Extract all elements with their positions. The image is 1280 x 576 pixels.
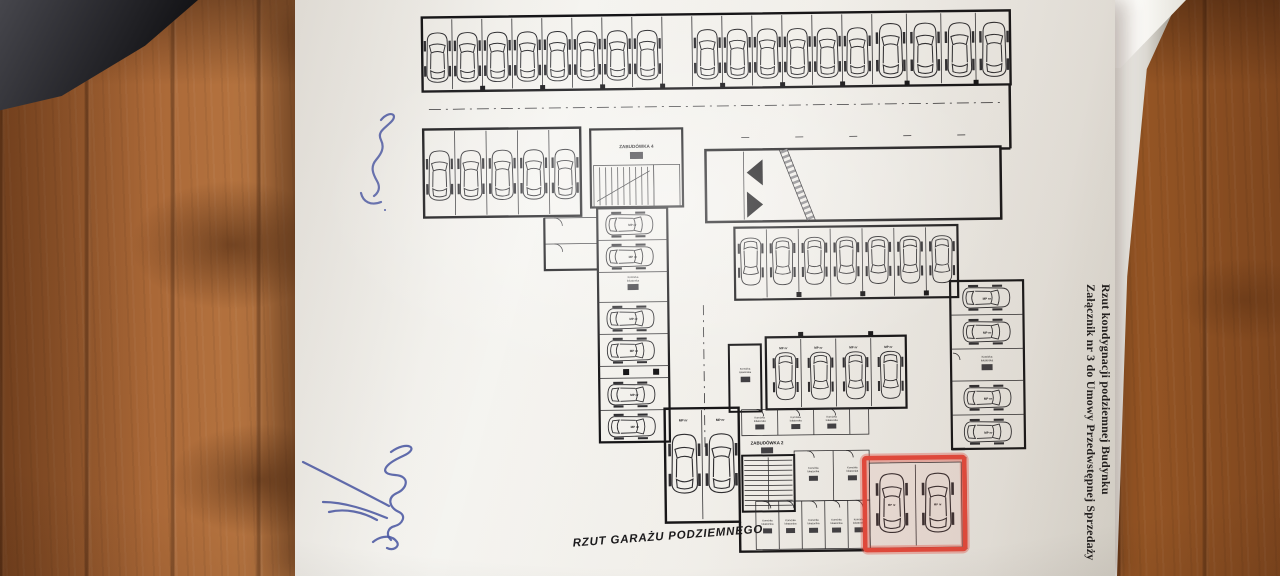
ramp xyxy=(705,147,1001,223)
parking-space-label: MP nr xyxy=(984,397,993,401)
ramp-arrow-up-icon xyxy=(747,159,763,185)
svg-text:lokatorska: lokatorska xyxy=(627,279,640,283)
side-caption-line2: Załącznik nr 3 do Umowy Przedwstępnej Sp… xyxy=(1083,284,1098,576)
svg-text:lokatorska: lokatorska xyxy=(739,370,751,374)
ramp-hatching xyxy=(783,150,811,220)
svg-text:lokatorska: lokatorska xyxy=(981,358,994,362)
parking-space-label: MP nr xyxy=(629,255,638,259)
handwriting-top xyxy=(361,114,394,211)
handwriting-bottom xyxy=(303,446,411,549)
svg-text:lokatorska: lokatorska xyxy=(826,418,838,422)
svg-text:lokatorska: lokatorska xyxy=(808,521,820,525)
parking-center-cluster: Komórka lokatorska MP nr MP nr MP nr MP … xyxy=(729,331,907,412)
corridor-rooms xyxy=(544,217,598,270)
storage-room: Komórka lokatorska xyxy=(739,367,752,383)
storage-rooms-mid: Komórka lokatorska Komórka lokatorska xyxy=(794,450,870,501)
parking-left-cluster xyxy=(423,128,581,218)
svg-text:Komórka: Komórka xyxy=(628,275,639,279)
storage-room-row-bottom: Komórka lokatorska Komórka lokatorska Ko… xyxy=(756,500,871,549)
parking-right-column: MP nr MP nr MP nr MP nr Komórka lokators… xyxy=(950,280,1025,449)
area-number-box xyxy=(761,447,773,453)
parking-row-top xyxy=(422,10,1011,91)
parking-bottom-left-pair: MP nr MP nr xyxy=(665,408,740,523)
svg-text:lokatorska: lokatorska xyxy=(846,469,858,473)
plan-title: RZUT GARAŻU PODZIEMNEGO xyxy=(572,523,763,550)
parking-space-label: MP nr xyxy=(629,317,638,321)
side-caption: Rzut kondygnacji podziemnej Budynku Załą… xyxy=(1083,284,1113,576)
parking-space-label: MP nr xyxy=(849,345,858,349)
parking-space-label: MP nr xyxy=(631,425,640,429)
ramp-arrow-down-icon xyxy=(747,191,763,217)
aisle-center-line xyxy=(429,102,1005,109)
svg-text:lokatorska: lokatorska xyxy=(762,522,774,526)
svg-text:lokatorska: lokatorska xyxy=(807,469,819,473)
parking-mid-left-column: MP nr MP nr MP nr MP nr MP nr MP nr Komó… xyxy=(597,208,670,443)
svg-text:lokatorska: lokatorska xyxy=(790,418,802,422)
parking-space-label: MP nr xyxy=(884,345,893,349)
parking-space-label: MP nr xyxy=(983,331,992,335)
parking-space-label: MP nr xyxy=(814,346,823,350)
area-number-box xyxy=(630,152,643,159)
floor-plan-sheet: ZABUDÓWKA 4 xyxy=(295,0,1115,576)
parking-space-label: MP nr xyxy=(628,223,637,227)
aisle-center-line-vertical xyxy=(703,305,705,452)
stairwell-bottom-label: ZABUDÓWKA 2 xyxy=(751,440,784,445)
storage-room: Komórka lokatorska xyxy=(627,275,640,290)
svg-text:lokatorska: lokatorska xyxy=(754,419,766,423)
parking-space-label: MP nr xyxy=(983,297,992,301)
svg-text:Komórka: Komórka xyxy=(982,355,993,359)
red-highlight-box xyxy=(864,457,965,550)
side-caption-line1: Rzut kondygnacji podziemnej Budynku xyxy=(1098,284,1113,576)
stairwell-top-label: ZABUDÓWKA 4 xyxy=(619,142,654,149)
parking-highlighted-pair: MP nr MP nr xyxy=(864,457,965,550)
parking-space-label: MP nr xyxy=(630,393,639,397)
svg-text:lokatorska: lokatorska xyxy=(831,521,843,525)
svg-text:lokatorska: lokatorska xyxy=(785,521,797,525)
parking-space-label: MP nr xyxy=(984,431,993,435)
parking-space-label: MP nr xyxy=(779,346,788,350)
dark-object xyxy=(0,0,220,120)
parking-space-label: MP nr xyxy=(716,418,726,422)
aisle-marks xyxy=(741,135,993,138)
parking-space-label: MP nr xyxy=(679,418,689,422)
stairwell-top: ZABUDÓWKA 4 xyxy=(590,128,683,207)
photo-scene: ZABUDÓWKA 4 xyxy=(0,0,1280,576)
parking-row-middle xyxy=(734,225,958,300)
parking-space-label: MP nr xyxy=(630,349,639,353)
storage-room: Komórka lokatorska xyxy=(953,353,994,371)
floor-plan-drawing: ZABUDÓWKA 4 xyxy=(295,0,1115,576)
